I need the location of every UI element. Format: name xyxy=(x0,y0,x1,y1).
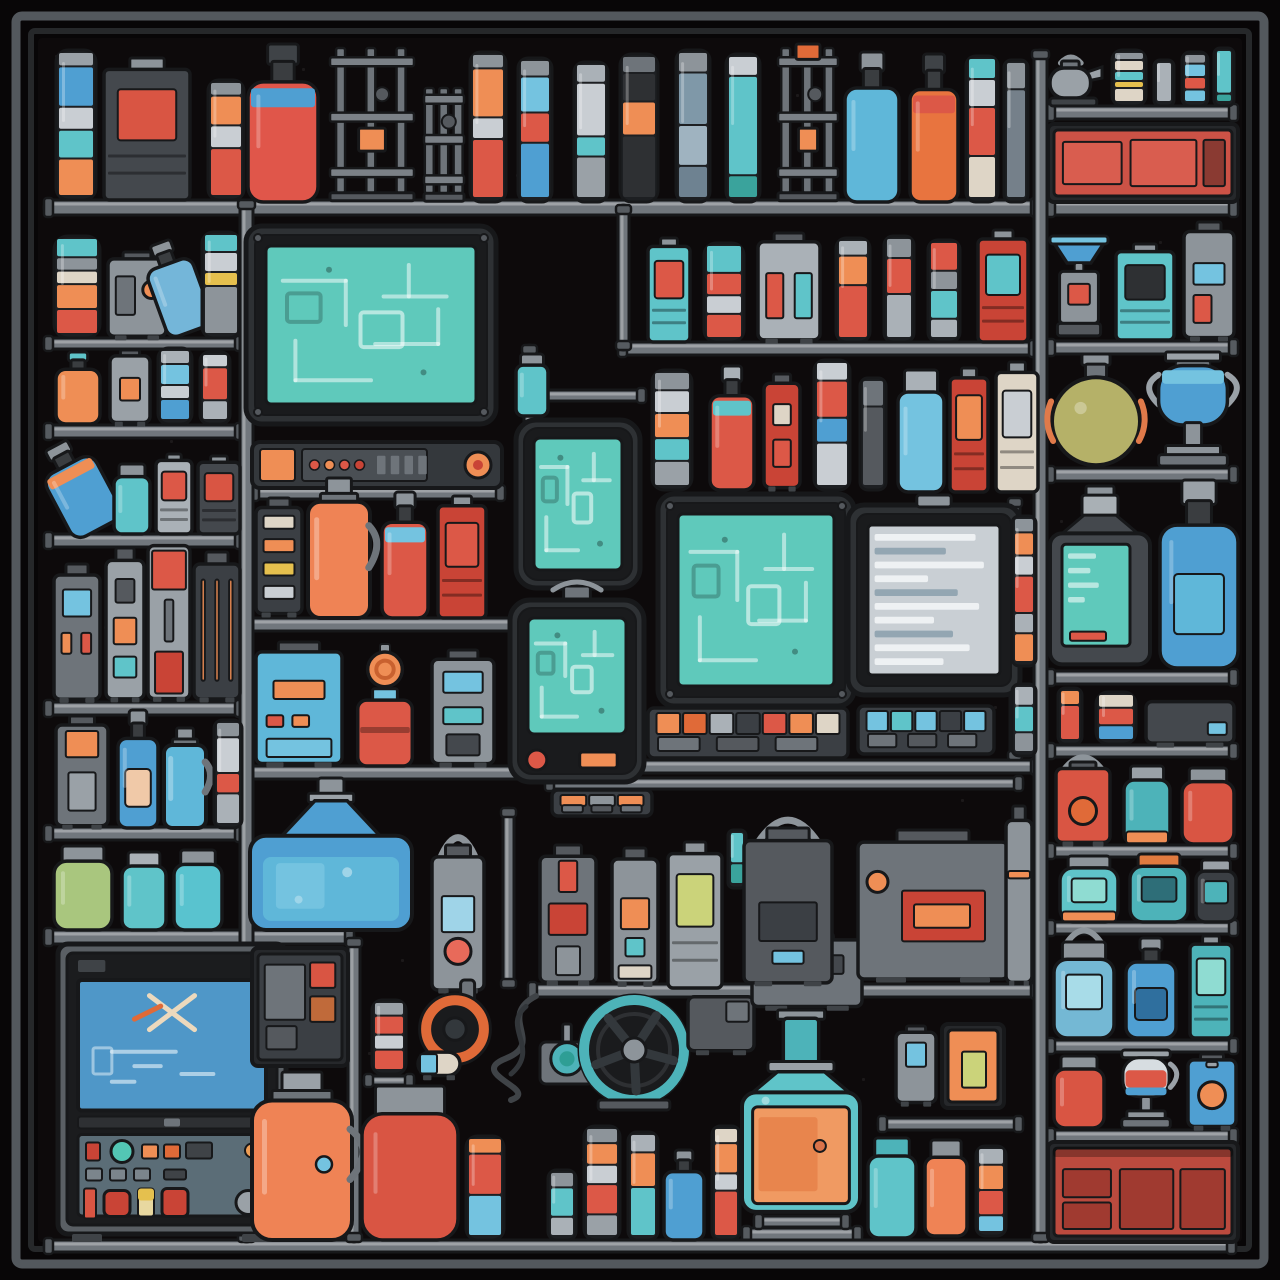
banded-jar xyxy=(54,236,100,338)
shelf-bar xyxy=(1046,669,1238,686)
screen-jar xyxy=(1060,856,1118,922)
control-deck-left xyxy=(648,708,848,758)
teal-canister xyxy=(868,1138,916,1238)
dome-canister xyxy=(56,716,108,830)
wall-red-cabinet xyxy=(1048,124,1238,202)
shelf-bar xyxy=(878,1116,1023,1132)
beaker-jar xyxy=(114,464,150,534)
cream-canister xyxy=(996,362,1038,492)
specimen-vial xyxy=(372,1000,406,1074)
red-vase xyxy=(1182,768,1234,844)
mini-deck xyxy=(552,790,652,816)
tall-red-canister xyxy=(978,230,1028,342)
gauge-stand xyxy=(896,1026,936,1107)
stand-vial xyxy=(214,720,242,828)
duo-cup xyxy=(1096,692,1136,744)
mixer-gadget xyxy=(106,548,144,702)
red-cylinder xyxy=(950,368,988,492)
red-ribbed-canister xyxy=(438,496,486,618)
silver-red-vial xyxy=(966,56,998,202)
bench-vial-small xyxy=(548,1170,576,1240)
mini-teal-canister xyxy=(516,354,548,416)
silver-canister xyxy=(156,454,192,534)
valve-machine xyxy=(744,820,832,986)
engine-block xyxy=(858,830,1008,982)
bench-vial-banded xyxy=(584,1126,620,1240)
drawer-cabinet xyxy=(1048,1142,1238,1242)
spray-vial xyxy=(1058,688,1082,744)
lab-console-bottle xyxy=(256,642,342,767)
pipe-column xyxy=(616,205,631,350)
teal-mini-tube xyxy=(1214,48,1234,106)
kettle-jar xyxy=(1054,931,1114,1038)
capsule-pill xyxy=(418,1052,460,1080)
crate-box xyxy=(942,1024,1004,1108)
lime-canister xyxy=(668,842,722,988)
scene-canvas xyxy=(0,0,1280,1280)
pipe-scaffold xyxy=(330,48,414,201)
bench-vial-orange xyxy=(628,1132,658,1240)
pole-gauge xyxy=(612,848,658,987)
pipe-column xyxy=(501,808,516,988)
teal-jar-tube xyxy=(704,243,744,342)
gray-stub xyxy=(860,378,886,490)
stripe-vial xyxy=(1182,52,1208,106)
striped-box xyxy=(194,552,240,703)
control-strip xyxy=(252,442,502,488)
red-mini-vial xyxy=(200,352,230,424)
elbow-engine xyxy=(688,997,754,1055)
cream-jar xyxy=(1112,50,1146,106)
micro-vial xyxy=(1154,60,1174,106)
pipe-vial-lower xyxy=(1012,684,1036,756)
striped-module xyxy=(256,498,302,617)
teal-locker xyxy=(1116,244,1174,340)
shelf-bar xyxy=(536,388,646,403)
silver-teal-jar xyxy=(898,370,944,492)
cap-scaffold xyxy=(778,44,838,201)
pipe-vial-column xyxy=(1012,516,1036,666)
test-tube-silver xyxy=(574,62,608,202)
perfume-bottle xyxy=(1188,1054,1236,1131)
control-deck-right xyxy=(858,706,994,754)
monitor-teal xyxy=(658,494,854,706)
lantern-pump xyxy=(432,838,484,994)
micro-canister xyxy=(466,1136,504,1240)
test-tube-orange xyxy=(470,52,506,202)
ring-gadget xyxy=(1056,758,1110,847)
banded-vial xyxy=(208,80,244,200)
yellow-band-vial xyxy=(202,232,240,338)
red-pot xyxy=(1054,1056,1104,1128)
gray-tube xyxy=(1004,60,1028,202)
banded-tube xyxy=(712,1126,740,1240)
green-jar xyxy=(54,846,112,930)
tablet-display-upper xyxy=(516,420,640,588)
piston-vial xyxy=(56,50,96,200)
tablet-display-lower xyxy=(510,582,644,782)
red-tube-b xyxy=(884,236,914,342)
monitor-data xyxy=(848,495,1020,695)
teal-pot xyxy=(1130,854,1188,922)
gauge-figure xyxy=(110,350,150,427)
red-jar xyxy=(362,1086,458,1240)
blue-band-vial xyxy=(158,348,192,424)
power-pole xyxy=(1006,806,1032,986)
teal-perfume xyxy=(1124,766,1170,844)
angle-valve xyxy=(764,374,800,492)
orange-pot xyxy=(925,1140,967,1236)
test-tube-steel xyxy=(676,50,710,202)
test-tube-teal xyxy=(726,54,760,202)
illustration-shelves-of-apparatus xyxy=(0,0,1280,1280)
tool-tray xyxy=(1146,702,1234,748)
duo-vial xyxy=(814,360,850,490)
dot-jar xyxy=(1196,860,1236,922)
cube-jar xyxy=(174,850,222,930)
teal-red-canister xyxy=(648,238,690,342)
amber-vial xyxy=(976,1146,1006,1236)
camera-gadget xyxy=(54,564,100,703)
funnel-gauge xyxy=(1050,236,1108,336)
shelf-bar xyxy=(754,1214,850,1229)
red-tube-a xyxy=(836,238,870,342)
dark-canister xyxy=(198,456,240,534)
test-tube-dark xyxy=(620,54,658,202)
equipment-module xyxy=(252,948,348,1066)
teal-column xyxy=(1190,936,1232,1038)
syringe-stand xyxy=(540,845,596,986)
red-tube-c xyxy=(928,240,960,342)
pump-canister xyxy=(1184,222,1234,341)
test-tube-blue xyxy=(518,58,552,202)
bucket-press xyxy=(148,546,190,702)
stand-tube xyxy=(652,370,692,490)
stack-pump xyxy=(432,650,494,768)
hook-stand xyxy=(424,88,464,201)
teal-jar xyxy=(122,852,166,930)
supply-cabinet xyxy=(104,58,190,200)
main-display xyxy=(246,226,496,424)
machine-vial xyxy=(758,233,820,344)
